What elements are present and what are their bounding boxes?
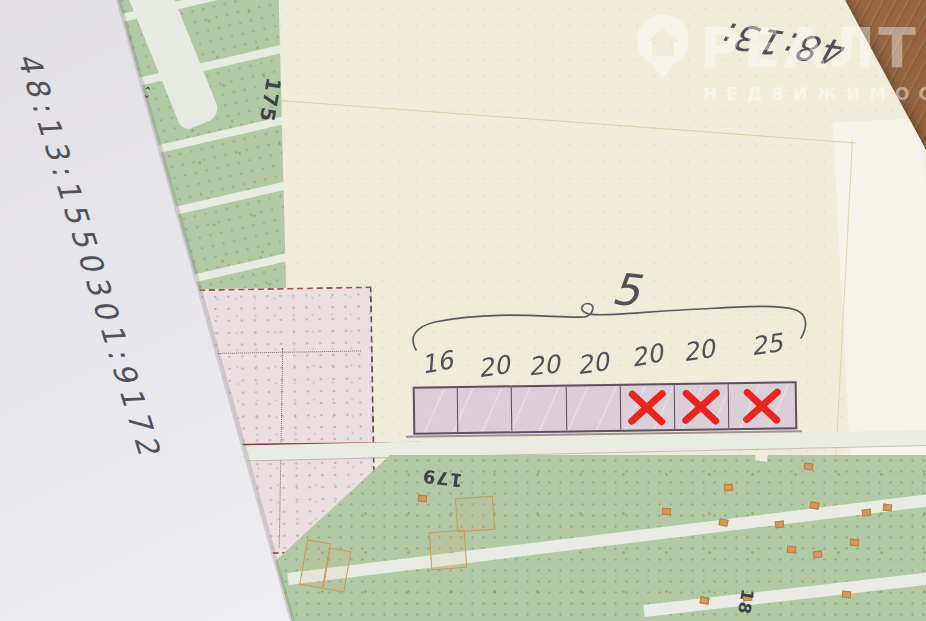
handwritten-width-label: 20	[527, 349, 562, 381]
handwritten-cadastral-prefix: 48:13:	[696, 11, 874, 76]
handwritten-width-label: 25	[749, 328, 785, 361]
plot-cell	[415, 388, 458, 433]
building-icon	[842, 591, 852, 599]
building-icon	[662, 508, 671, 516]
building-icon	[804, 462, 814, 470]
building-icon	[699, 596, 709, 604]
map-paper-margin	[833, 118, 926, 482]
map-road	[643, 571, 926, 617]
building-icon	[850, 539, 860, 547]
plot-cell-crossed	[619, 385, 674, 430]
handwritten-count: 5	[609, 263, 642, 317]
plot-cell	[511, 387, 566, 432]
building-icon	[862, 508, 872, 516]
building-icon	[883, 504, 893, 512]
handwritten-width-label: 16	[419, 345, 455, 379]
building-icon	[418, 495, 428, 503]
photo-of-cadastral-map: ‹ › 175	[0, 0, 926, 621]
plot-cell	[457, 387, 512, 432]
plot-cell-crossed	[727, 383, 795, 428]
building-outline	[455, 496, 495, 533]
handwritten-width-label: 20	[681, 334, 717, 367]
handwritten-cadastral-number: 48:13:1550301:9172	[11, 48, 169, 464]
building-outline	[429, 530, 468, 570]
handwritten-width-label: 20	[629, 338, 665, 372]
handwritten-width-label: 20	[575, 347, 611, 380]
building-icon	[775, 521, 785, 529]
plot-cell	[565, 386, 620, 431]
building-icon	[809, 501, 819, 509]
plot-cell-crossed	[673, 384, 728, 429]
building-icon	[724, 484, 734, 492]
plot-row-strip	[413, 381, 798, 434]
building-icon	[813, 550, 823, 558]
map-road	[755, 448, 768, 461]
map-road	[287, 489, 926, 585]
handwritten-width-label: 20	[476, 350, 512, 383]
building-icon	[787, 545, 797, 553]
parcel-boundary-line	[238, 97, 856, 143]
